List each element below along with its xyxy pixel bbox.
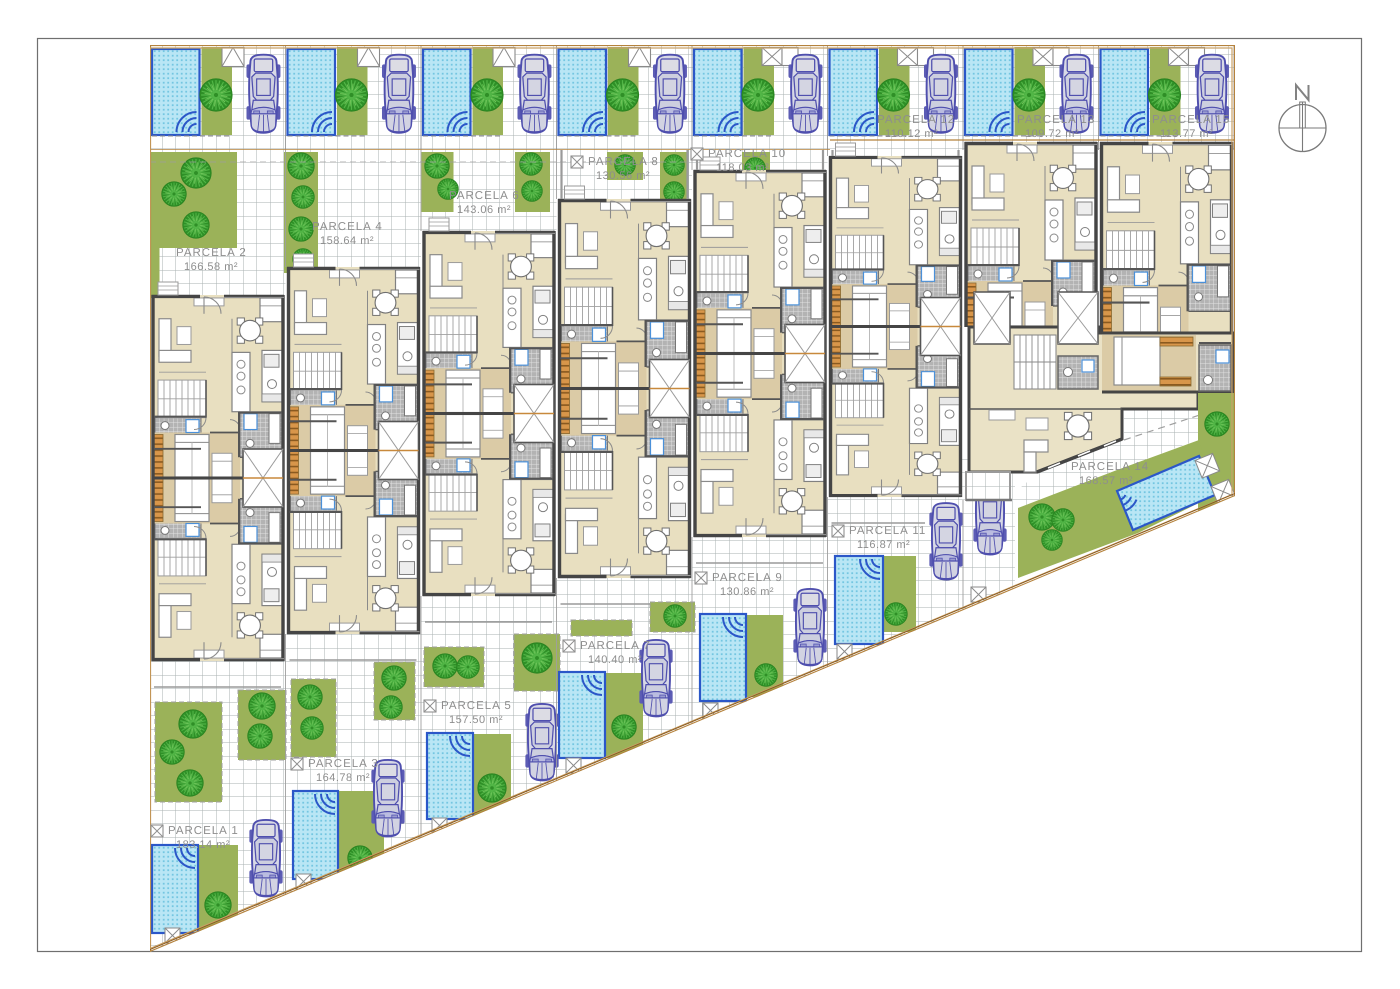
svg-text:PARCELA 6: PARCELA 6 <box>449 190 520 202</box>
svg-text:110.12 m²: 110.12 m² <box>885 128 938 140</box>
svg-text:183.14 m²: 183.14 m² <box>176 839 230 851</box>
svg-text:PARCELA 13: PARCELA 13 <box>1017 114 1095 126</box>
svg-text:116.87 m²: 116.87 m² <box>857 539 910 551</box>
svg-text:113.77 m²: 113.77 m² <box>1160 128 1213 140</box>
svg-text:140.40 m²: 140.40 m² <box>588 654 642 666</box>
svg-text:PARCELA 2: PARCELA 2 <box>176 247 247 259</box>
svg-text:PARCELA 8: PARCELA 8 <box>588 156 659 168</box>
svg-text:158.64 m²: 158.64 m² <box>320 235 374 247</box>
svg-text:PARCELA 14: PARCELA 14 <box>1071 461 1149 473</box>
svg-text:157.50 m²: 157.50 m² <box>449 714 503 726</box>
svg-text:PARCELA 1: PARCELA 1 <box>168 825 239 837</box>
svg-text:109.72 m²: 109.72 m² <box>1025 128 1079 140</box>
svg-text:118.03 m²: 118.03 m² <box>716 162 769 174</box>
svg-text:164.78 m²: 164.78 m² <box>316 772 370 784</box>
svg-text:PARCELA 12: PARCELA 12 <box>877 114 955 126</box>
svg-text:168.57 m²: 168.57 m² <box>1079 475 1133 487</box>
svg-text:143.06 m²: 143.06 m² <box>457 204 511 216</box>
svg-text:PARCELA 10: PARCELA 10 <box>708 148 786 160</box>
svg-text:PARCELA 15: PARCELA 15 <box>1152 114 1230 126</box>
svg-text:PARCELA 7: PARCELA 7 <box>580 640 651 652</box>
svg-text:PARCELA 11: PARCELA 11 <box>849 525 926 537</box>
svg-text:PARCELA 9: PARCELA 9 <box>712 572 783 584</box>
svg-text:PARCELA 4: PARCELA 4 <box>312 221 383 233</box>
svg-text:PARCELA 5: PARCELA 5 <box>441 700 512 712</box>
svg-text:130.86 m²: 130.86 m² <box>720 586 774 598</box>
svg-text:PARCELA 3: PARCELA 3 <box>308 758 379 770</box>
svg-text:166.58 m²: 166.58 m² <box>184 261 238 273</box>
svg-text:130.56 m²: 130.56 m² <box>596 170 650 182</box>
